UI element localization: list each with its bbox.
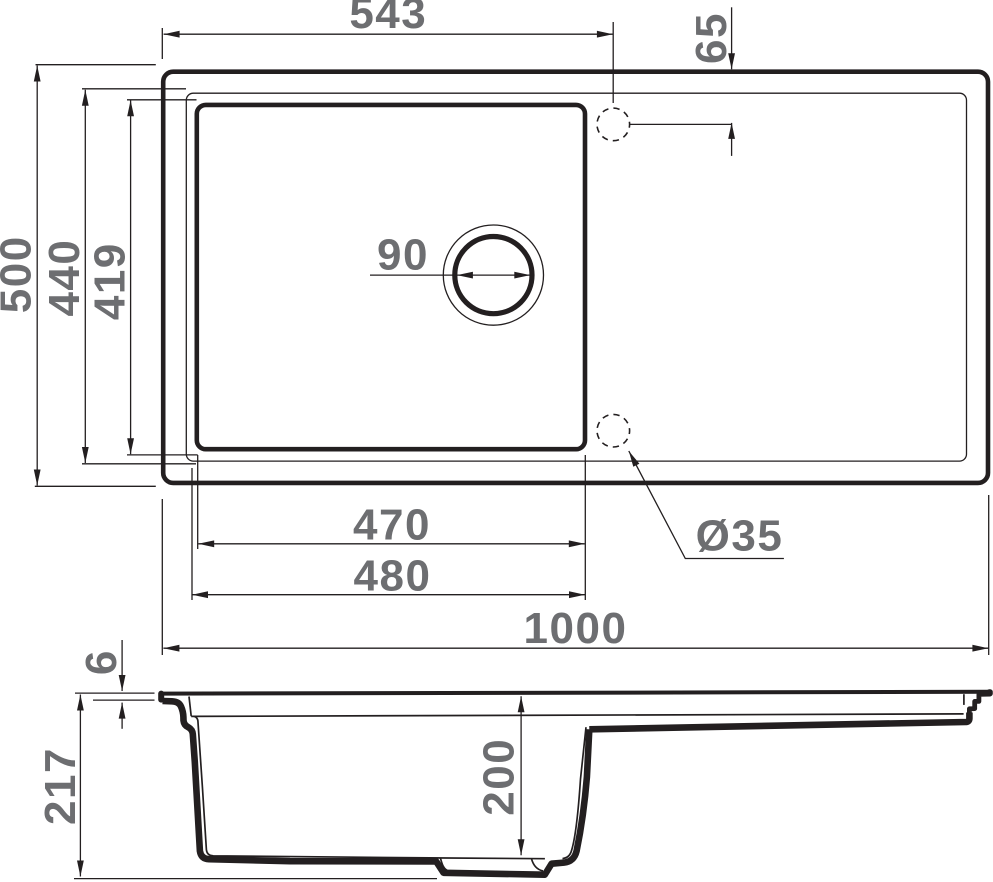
svg-text:500: 500 [0,235,41,313]
svg-text:419: 419 [85,242,134,320]
svg-text:217: 217 [36,747,85,825]
svg-text:543: 543 [349,0,427,38]
svg-text:65: 65 [687,12,736,64]
svg-text:440: 440 [40,239,89,317]
svg-text:6: 6 [77,649,126,675]
svg-text:Ø35: Ø35 [696,512,784,561]
svg-text:90: 90 [377,231,429,280]
svg-text:470: 470 [353,501,431,550]
svg-text:480: 480 [354,552,432,601]
svg-text:200: 200 [475,738,524,816]
svg-text:1000: 1000 [524,604,628,653]
